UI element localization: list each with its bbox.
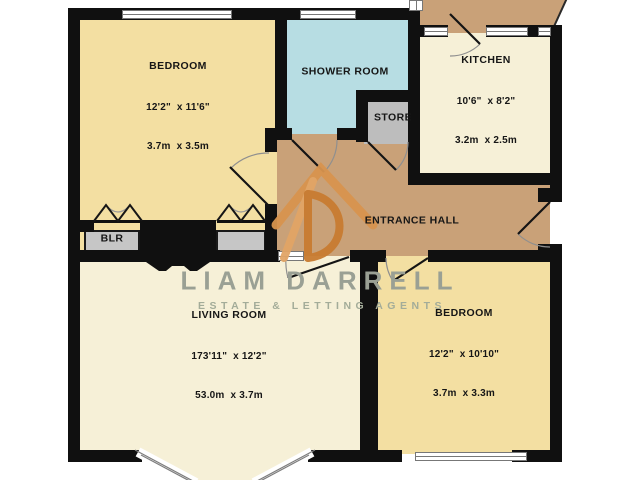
room-name: STORE xyxy=(374,112,412,126)
room-dims-m: 3.7m x 3.5m xyxy=(146,140,210,153)
room-dims-ft: 10'6" x 8'2" xyxy=(455,95,517,108)
room-name: SHOWER ROOM xyxy=(301,66,388,80)
room-name: BEDROOM xyxy=(146,61,210,75)
room-dims-m: 3.7m x 3.3m xyxy=(429,387,499,400)
room-name: BLR xyxy=(101,233,124,247)
floor-plan: BEDROOM 12'2" x 11'6" 3.7m x 3.5m SHOWER… xyxy=(0,0,640,480)
door-arc xyxy=(324,140,337,172)
watermark-subtitle: ESTATE & LETTING AGENTS xyxy=(198,300,446,312)
room-label-store: STORE xyxy=(374,86,412,153)
watermark-title: LIAM DARRELL xyxy=(181,266,460,297)
room-dims-ft: 12'2" x 11'6" xyxy=(146,101,210,114)
room-label-kitchen: KITCHEN 10'6" x 8'2" 3.2m x 2.5m xyxy=(455,28,517,174)
room-label-entrance-hall: ENTRANCE HALL xyxy=(365,189,459,256)
room-label-bedroom-1: BEDROOM 12'2" x 11'6" 3.7m x 3.5m xyxy=(146,34,210,180)
room-dims-m: 53.0m x 3.7m xyxy=(191,389,266,402)
door-leaf xyxy=(230,167,269,206)
door-arc xyxy=(518,234,550,247)
agency-logo-icon xyxy=(276,169,373,258)
room-label-boiler: BLR xyxy=(101,207,124,274)
front-door-leaf xyxy=(518,202,550,234)
room-dims-ft: 12'2" x 10'10" xyxy=(429,348,499,361)
room-dims-ft: 173'11" x 12'2" xyxy=(191,350,266,363)
door-arc xyxy=(231,153,269,168)
room-dims-m: 3.2m x 2.5m xyxy=(455,134,517,147)
room-name: ENTRANCE HALL xyxy=(365,215,459,229)
room-name: KITCHEN xyxy=(455,55,517,69)
bay-window-glazing xyxy=(135,450,315,480)
